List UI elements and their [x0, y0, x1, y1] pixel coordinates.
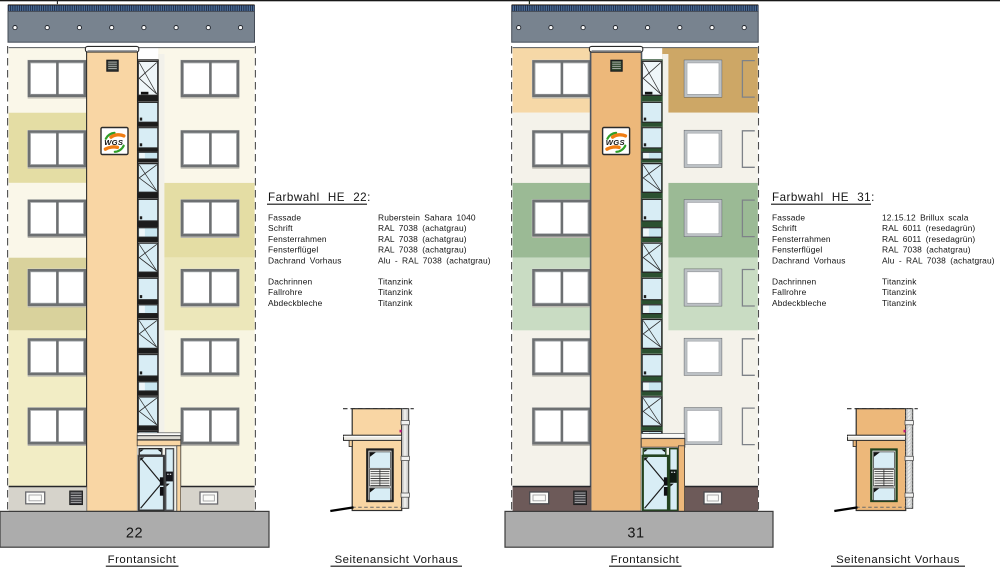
svg-text:Ruberstein Sahara 1040: Ruberstein Sahara 1040 [378, 213, 476, 223]
svg-text:RAL 7038 (achatgrau): RAL 7038 (achatgrau) [378, 234, 467, 244]
svg-text:WGS: WGS [104, 138, 123, 147]
svg-text:Titanzink: Titanzink [882, 287, 917, 297]
svg-text:Alu - RAL 7038 (achatgrau): Alu - RAL 7038 (achatgrau) [378, 255, 491, 265]
svg-text:22: 22 [126, 526, 143, 542]
svg-text:Fensterflügel: Fensterflügel [772, 245, 822, 255]
svg-text:Seitenansicht Vorhaus: Seitenansicht Vorhaus [836, 554, 960, 566]
svg-text:Schrift: Schrift [772, 223, 797, 233]
svg-text:Dachrand Vorhaus: Dachrand Vorhaus [268, 255, 342, 265]
svg-text:RAL 7038 (achatgrau): RAL 7038 (achatgrau) [378, 223, 467, 233]
svg-text:Abdeckbleche: Abdeckbleche [268, 298, 323, 308]
svg-text:Titanzink: Titanzink [378, 287, 413, 297]
svg-text:Titanzink: Titanzink [882, 298, 917, 308]
svg-text:Titanzink: Titanzink [378, 277, 413, 287]
svg-text:Dachrinnen: Dachrinnen [772, 277, 817, 287]
svg-text:RAL 6011 (resedagrün): RAL 6011 (resedagrün) [882, 223, 975, 233]
svg-text:31: 31 [627, 526, 644, 542]
svg-text:RAL 7038 (achatgrau): RAL 7038 (achatgrau) [882, 245, 971, 255]
svg-text:WGS: WGS [606, 138, 625, 147]
svg-text:Fassade: Fassade [772, 213, 805, 223]
svg-text:Abdeckbleche: Abdeckbleche [772, 298, 827, 308]
svg-text:Fallrohre: Fallrohre [268, 287, 303, 297]
svg-text:Frontansicht: Frontansicht [611, 554, 680, 566]
svg-text:RAL 7038 (achatgrau): RAL 7038 (achatgrau) [378, 245, 467, 255]
svg-text:Fensterrahmen: Fensterrahmen [268, 234, 327, 244]
svg-text:Dachrand Vorhaus: Dachrand Vorhaus [772, 255, 846, 265]
svg-text:RAL 6011 (resedagrün): RAL 6011 (resedagrün) [882, 234, 975, 244]
svg-text:Titanzink: Titanzink [378, 298, 413, 308]
svg-text:Fensterflügel: Fensterflügel [268, 245, 318, 255]
svg-text:Frontansicht: Frontansicht [108, 554, 177, 566]
svg-text:Schrift: Schrift [268, 223, 293, 233]
svg-text:Fassade: Fassade [268, 213, 301, 223]
svg-text:Alu - RAL 7038 (achatgrau): Alu - RAL 7038 (achatgrau) [882, 255, 995, 265]
svg-text:Seitenansicht Vorhaus: Seitenansicht Vorhaus [335, 554, 459, 566]
svg-text:Fallrohre: Fallrohre [772, 287, 807, 297]
svg-text:12.15.12 Brillux scala: 12.15.12 Brillux scala [882, 213, 969, 223]
svg-text:Farbwahl HE 22:: Farbwahl HE 22: [268, 191, 371, 204]
svg-text:Dachrinnen: Dachrinnen [268, 277, 313, 287]
svg-text:Farbwahl HE 31:: Farbwahl HE 31: [772, 191, 875, 204]
svg-text:Titanzink: Titanzink [882, 277, 917, 287]
svg-text:Fensterrahmen: Fensterrahmen [772, 234, 831, 244]
